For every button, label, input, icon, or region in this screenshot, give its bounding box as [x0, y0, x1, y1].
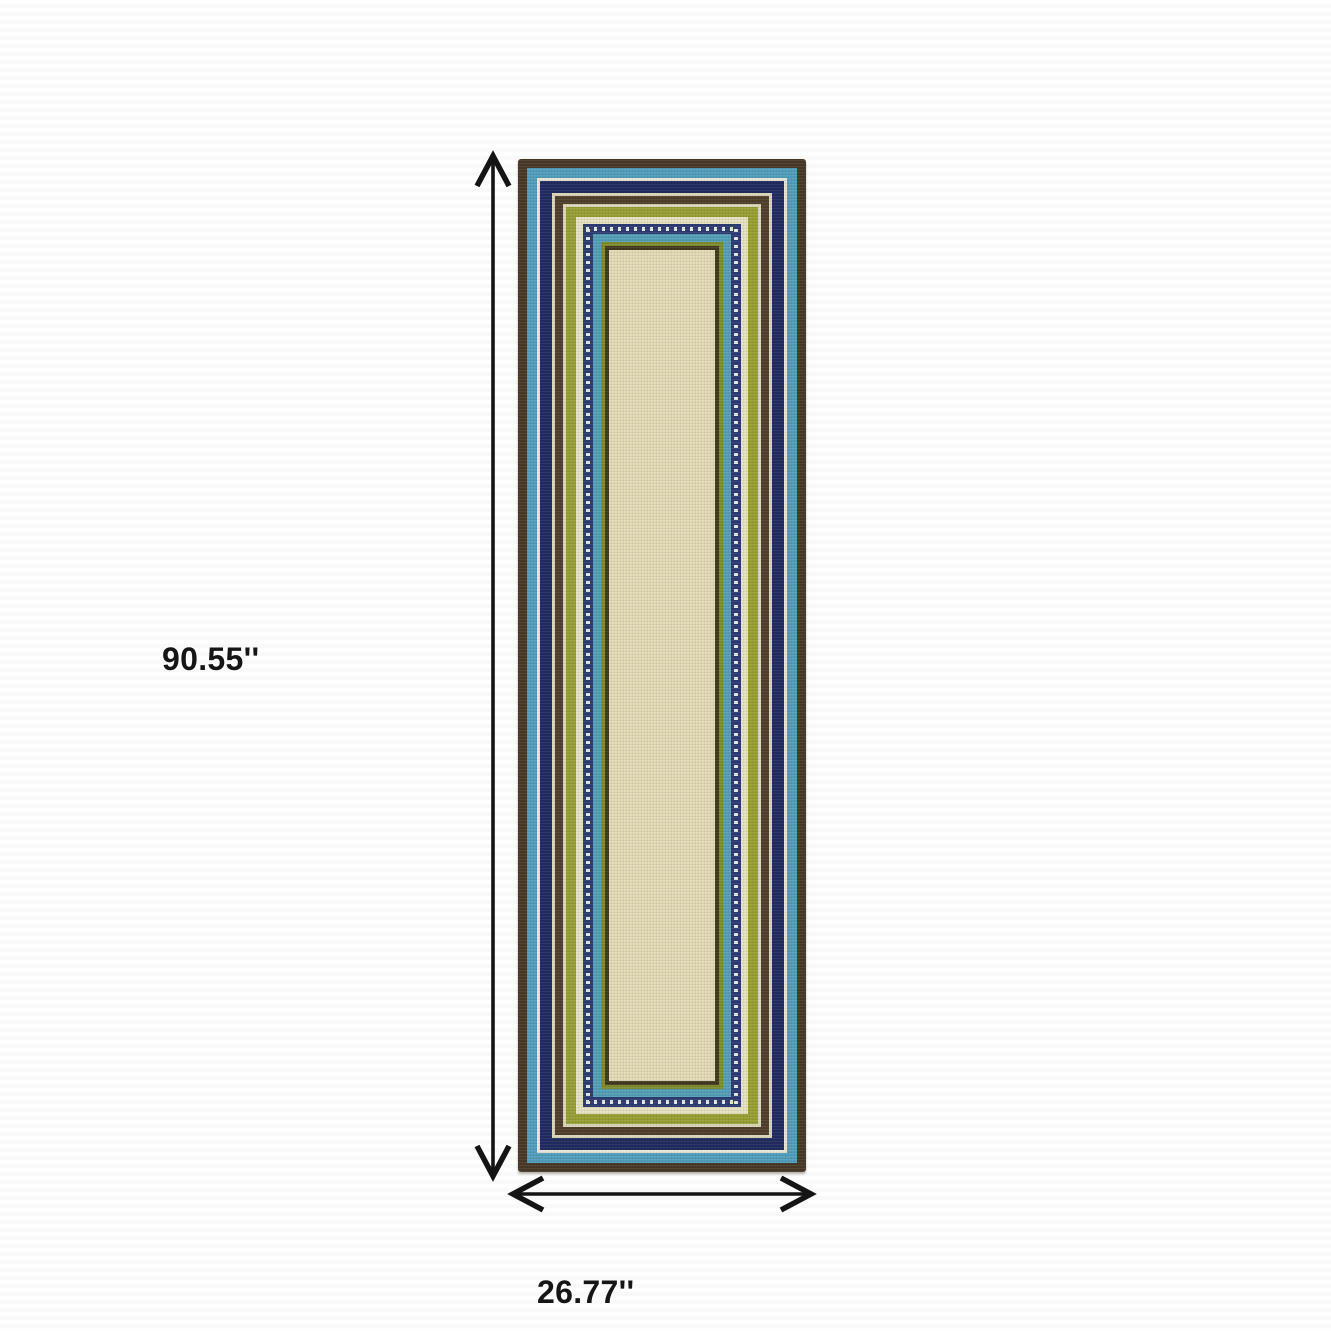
rug-ring-navy-dotted	[583, 224, 741, 1107]
rug-ring-cream-line	[552, 193, 772, 1138]
width-dimension-arrow	[506, 1172, 818, 1216]
rug-ring-brown-thin	[605, 246, 719, 1085]
rug-ring-mid-brown	[555, 196, 769, 1135]
rug-ring-olive-green	[566, 207, 758, 1124]
rug-ring-outer-brown	[518, 159, 806, 1172]
rug-ring-teal-blue	[593, 234, 731, 1097]
dotted-band-overlay	[586, 1100, 738, 1104]
rug-ring-light-blue	[527, 168, 797, 1163]
height-dimension-arrow	[471, 149, 515, 1183]
rug-ring-pale-cream	[576, 217, 748, 1114]
rug-ring-olive-thin	[601, 242, 723, 1089]
rug-ring-navy	[540, 181, 784, 1150]
dotted-band-overlay	[586, 227, 590, 1104]
rug-ring-white-line	[537, 178, 787, 1153]
dotted-band-overlay	[586, 227, 738, 231]
width-dimension-label: 26.77''	[537, 1274, 634, 1311]
product-dimension-diagram: 90.55'' 26.77''	[0, 0, 1331, 1331]
rug-center-field	[609, 250, 715, 1081]
rug-image	[518, 159, 806, 1172]
height-dimension-label: 90.55''	[162, 641, 259, 678]
rug-ring-cream-line-2	[563, 204, 761, 1127]
dotted-band-overlay	[734, 227, 738, 1104]
